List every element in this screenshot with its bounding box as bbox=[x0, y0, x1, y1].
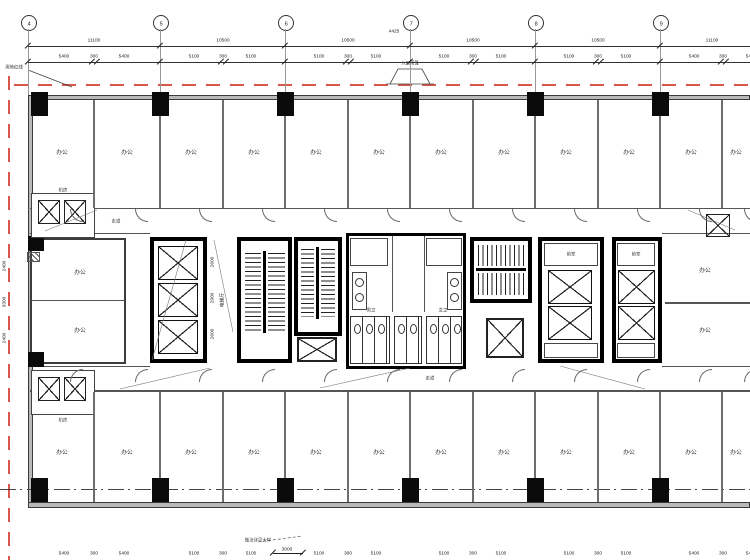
dim-label: 5100 bbox=[313, 53, 324, 58]
grid-bubble: 5 bbox=[153, 15, 169, 31]
toilet-icon bbox=[378, 324, 385, 334]
room-label: 办公 bbox=[310, 148, 322, 156]
door-arc bbox=[135, 369, 148, 382]
room-label: 办公 bbox=[56, 448, 68, 456]
column bbox=[277, 92, 294, 116]
site-line-label: 用地红线 bbox=[5, 64, 23, 70]
partition-wall bbox=[284, 100, 286, 208]
column bbox=[652, 92, 669, 116]
dim-label: 5100 bbox=[371, 53, 382, 58]
toilet-icon bbox=[398, 324, 405, 334]
door-arc bbox=[262, 369, 275, 382]
grid-bubble-label: 6 bbox=[284, 20, 287, 26]
door-arc bbox=[744, 369, 750, 382]
room-label: 办公 bbox=[699, 266, 711, 274]
room-label: 办公 bbox=[730, 448, 742, 456]
exterior-wall-bottom bbox=[28, 502, 750, 508]
toilet-room bbox=[426, 238, 462, 266]
sink-icon bbox=[450, 293, 459, 302]
door-arc bbox=[387, 369, 400, 382]
column bbox=[28, 236, 44, 251]
partition-wall bbox=[597, 392, 599, 502]
elevator-icon bbox=[158, 320, 198, 354]
dim-label: 5100 bbox=[621, 550, 632, 555]
dim-label: 2400 bbox=[1, 333, 6, 344]
room-label: 办公 bbox=[310, 448, 322, 456]
room-left-block bbox=[30, 238, 126, 364]
partition-wall bbox=[93, 392, 95, 502]
room-label: 办公 bbox=[498, 448, 510, 456]
column bbox=[31, 478, 48, 502]
dim-line bbox=[28, 62, 750, 63]
partition-wall bbox=[222, 100, 224, 208]
room-label: 办公 bbox=[623, 448, 635, 456]
dim-line bbox=[28, 46, 750, 47]
column bbox=[527, 92, 544, 116]
door-arc bbox=[637, 369, 650, 382]
dim-label: 2400 bbox=[1, 261, 6, 272]
dim-label: 5400 bbox=[58, 550, 69, 555]
dim-label: 5400 bbox=[688, 53, 699, 58]
grid-bubble: 6 bbox=[278, 15, 294, 31]
column bbox=[527, 478, 544, 502]
dim-label: 5100 bbox=[563, 53, 574, 58]
partition-wall bbox=[93, 100, 95, 208]
dim-label: 5400 bbox=[58, 53, 69, 58]
room-label: 办公 bbox=[248, 148, 260, 156]
column bbox=[28, 352, 44, 367]
door-arc bbox=[199, 369, 212, 382]
dim-label: 5100 bbox=[188, 53, 199, 58]
corridor-wall bbox=[662, 366, 750, 367]
dim-note: 4425 bbox=[389, 28, 400, 33]
door-arc bbox=[387, 209, 400, 222]
column bbox=[277, 478, 294, 502]
partition-wall bbox=[347, 392, 349, 502]
partition-wall bbox=[222, 392, 224, 502]
stair-divider bbox=[476, 268, 526, 271]
room-label: 办公 bbox=[730, 148, 742, 156]
room-label: 办公 bbox=[373, 448, 385, 456]
column bbox=[152, 92, 169, 116]
elevator-icon bbox=[548, 306, 592, 340]
dim-label: 5400 bbox=[119, 53, 130, 58]
dim-label: 300 bbox=[343, 550, 351, 555]
elevator-icon bbox=[158, 283, 198, 317]
dim-label: 300 bbox=[718, 550, 726, 555]
bottom-note-label: 做法详见大样 bbox=[245, 537, 271, 543]
dim-line bbox=[273, 553, 303, 554]
sink-icon bbox=[355, 278, 364, 287]
sink-icon bbox=[450, 278, 459, 287]
room-label: 办公 bbox=[121, 448, 133, 456]
vestibule-label: 前室 bbox=[567, 251, 576, 257]
wc-male-label: 男卫 bbox=[367, 307, 376, 313]
exterior-wall-top bbox=[28, 95, 750, 100]
fan-unit-icon bbox=[38, 200, 60, 224]
dim-label: 5100 bbox=[496, 53, 507, 58]
door-arc bbox=[512, 369, 525, 382]
room-divider bbox=[665, 302, 750, 304]
room-label: 办公 bbox=[699, 326, 711, 334]
door-arc bbox=[262, 209, 275, 222]
corridor-label: 走道 bbox=[112, 218, 121, 224]
service-elevator-icon bbox=[297, 337, 337, 362]
grid-bubble-label: 7 bbox=[409, 20, 412, 26]
door-arc bbox=[637, 209, 650, 222]
door-arc bbox=[199, 209, 212, 222]
dim-label: 2900 bbox=[209, 293, 214, 304]
partition-wall bbox=[534, 100, 536, 208]
dim-label: 300 bbox=[90, 550, 98, 555]
column bbox=[152, 478, 169, 502]
dim-label: 2600 bbox=[209, 329, 214, 340]
column bbox=[402, 478, 419, 502]
elevator-icon bbox=[618, 270, 655, 304]
dim-label: 5100 bbox=[563, 550, 574, 555]
elevator-icon bbox=[618, 306, 655, 340]
vestibule-label: 前室 bbox=[632, 251, 641, 257]
room-label: 办公 bbox=[685, 148, 697, 156]
room-divider bbox=[31, 300, 125, 301]
door-arc bbox=[449, 209, 462, 222]
grid-bubble: 7 bbox=[403, 15, 419, 31]
partition-wall bbox=[347, 100, 349, 208]
fan-unit-icon bbox=[38, 377, 60, 401]
door-arc bbox=[574, 369, 587, 382]
dim-label: 3300 bbox=[1, 297, 6, 308]
room-label: 办公 bbox=[685, 448, 697, 456]
grid-bubble-label: 5 bbox=[159, 20, 162, 26]
dim-label: 5400 bbox=[746, 550, 750, 555]
elevator-icon bbox=[158, 246, 198, 280]
room-label: 办公 bbox=[498, 148, 510, 156]
dim-label: 5400 bbox=[119, 550, 130, 555]
room-label: 办公 bbox=[56, 148, 68, 156]
partition-wall bbox=[659, 100, 661, 208]
toilet-partition bbox=[424, 236, 425, 312]
door-arc bbox=[324, 369, 337, 382]
dim-label: 2600 bbox=[209, 257, 214, 268]
partition-wall bbox=[721, 100, 723, 208]
grid-bubble-label: 9 bbox=[659, 20, 662, 26]
dim-label: 10500 bbox=[216, 37, 229, 42]
stair-divider bbox=[316, 247, 319, 319]
room-label: 办公 bbox=[560, 148, 572, 156]
room-label: 办公 bbox=[121, 148, 133, 156]
door-arc bbox=[699, 369, 712, 382]
door-arc bbox=[574, 209, 587, 222]
partition-wall bbox=[472, 100, 474, 208]
column bbox=[402, 92, 419, 116]
corridor-wall-bottom bbox=[30, 390, 750, 392]
wc-stalls bbox=[394, 316, 422, 364]
room-label: 办公 bbox=[185, 148, 197, 156]
partition-wall bbox=[721, 392, 723, 502]
vestibule-room bbox=[544, 343, 598, 358]
corridor-label: 走道 bbox=[426, 375, 435, 381]
site-boundary-line-horizontal bbox=[14, 84, 750, 86]
dim-label: 300 bbox=[468, 550, 476, 555]
dim-label: 5400 bbox=[746, 53, 750, 58]
door-arc bbox=[744, 209, 750, 222]
partition-wall bbox=[409, 100, 411, 208]
dim-label: 5100 bbox=[621, 53, 632, 58]
grid-centerline bbox=[0, 489, 750, 490]
dim-label: 5100 bbox=[371, 550, 382, 555]
room-label: 办公 bbox=[623, 148, 635, 156]
equipment-room-label: 机房 bbox=[59, 417, 68, 423]
corridor-wall bbox=[30, 366, 150, 367]
door-arc bbox=[699, 209, 712, 222]
dim-label: 10500 bbox=[591, 37, 604, 42]
toilet-partition bbox=[392, 236, 393, 312]
toilet-room bbox=[350, 238, 388, 266]
floor-plan-canvas: 用地红线 4425 入口雨篷 办公 办公 办公 办公 机房 机房 电梯厅 bbox=[0, 0, 750, 560]
partition-wall bbox=[159, 100, 161, 208]
equipment-room-label: 机房 bbox=[59, 187, 68, 193]
dim-label: 11100 bbox=[706, 37, 719, 42]
vestibule-room bbox=[617, 343, 655, 358]
room-label: 办公 bbox=[74, 326, 86, 334]
wc-female-label: 女卫 bbox=[439, 307, 448, 313]
dim-label: 10500 bbox=[466, 37, 479, 42]
toilet-icon bbox=[442, 324, 449, 334]
dim-label: 300 bbox=[218, 550, 226, 555]
elevator-hall-label: 电梯厅 bbox=[219, 293, 226, 307]
door-arc bbox=[449, 369, 462, 382]
room-label: 办公 bbox=[435, 148, 447, 156]
partition-wall bbox=[472, 392, 474, 502]
sink-icon bbox=[355, 293, 364, 302]
room-label: 办公 bbox=[560, 448, 572, 456]
grid-bubble: 4 bbox=[21, 15, 37, 31]
dim-label: 3000 bbox=[282, 546, 293, 551]
column bbox=[31, 92, 48, 116]
grid-bubble: 8 bbox=[528, 15, 544, 31]
dim-label: 300 bbox=[593, 550, 601, 555]
grid-line bbox=[410, 29, 411, 99]
toilet-icon bbox=[366, 324, 373, 334]
room-label: 办公 bbox=[435, 448, 447, 456]
room-label: 办公 bbox=[373, 148, 385, 156]
site-boundary-line-vertical bbox=[8, 76, 10, 560]
grid-bubble: 9 bbox=[653, 15, 669, 31]
stair-divider bbox=[263, 251, 266, 333]
door-arc bbox=[512, 209, 525, 222]
elevator-icon bbox=[486, 318, 524, 358]
toilet-icon bbox=[454, 324, 461, 334]
dim-label: 5400 bbox=[688, 550, 699, 555]
partition-wall bbox=[597, 100, 599, 208]
dim-label: 11100 bbox=[88, 37, 101, 42]
room-label: 办公 bbox=[74, 268, 86, 276]
dim-label: 5100 bbox=[496, 550, 507, 555]
louver-hatch bbox=[27, 252, 40, 262]
toilet-icon bbox=[430, 324, 437, 334]
toilet-icon bbox=[354, 324, 361, 334]
dim-label: 5100 bbox=[188, 550, 199, 555]
elevator-icon bbox=[548, 270, 592, 304]
dim-label: 5100 bbox=[313, 550, 324, 555]
door-arc bbox=[135, 209, 148, 222]
dim-label: 5100 bbox=[438, 550, 449, 555]
dim-label: 5100 bbox=[438, 53, 449, 58]
toilet-icon bbox=[410, 324, 417, 334]
grid-bubble-label: 8 bbox=[534, 20, 537, 26]
grid-bubble-label: 4 bbox=[27, 20, 30, 26]
dim-label: 5100 bbox=[246, 550, 257, 555]
dim-label: 5100 bbox=[246, 53, 257, 58]
dim-tick bbox=[300, 549, 307, 556]
column bbox=[652, 478, 669, 502]
dim-label: 10500 bbox=[341, 37, 354, 42]
room-label: 办公 bbox=[185, 448, 197, 456]
door-arc bbox=[324, 209, 337, 222]
room-label: 办公 bbox=[248, 448, 260, 456]
